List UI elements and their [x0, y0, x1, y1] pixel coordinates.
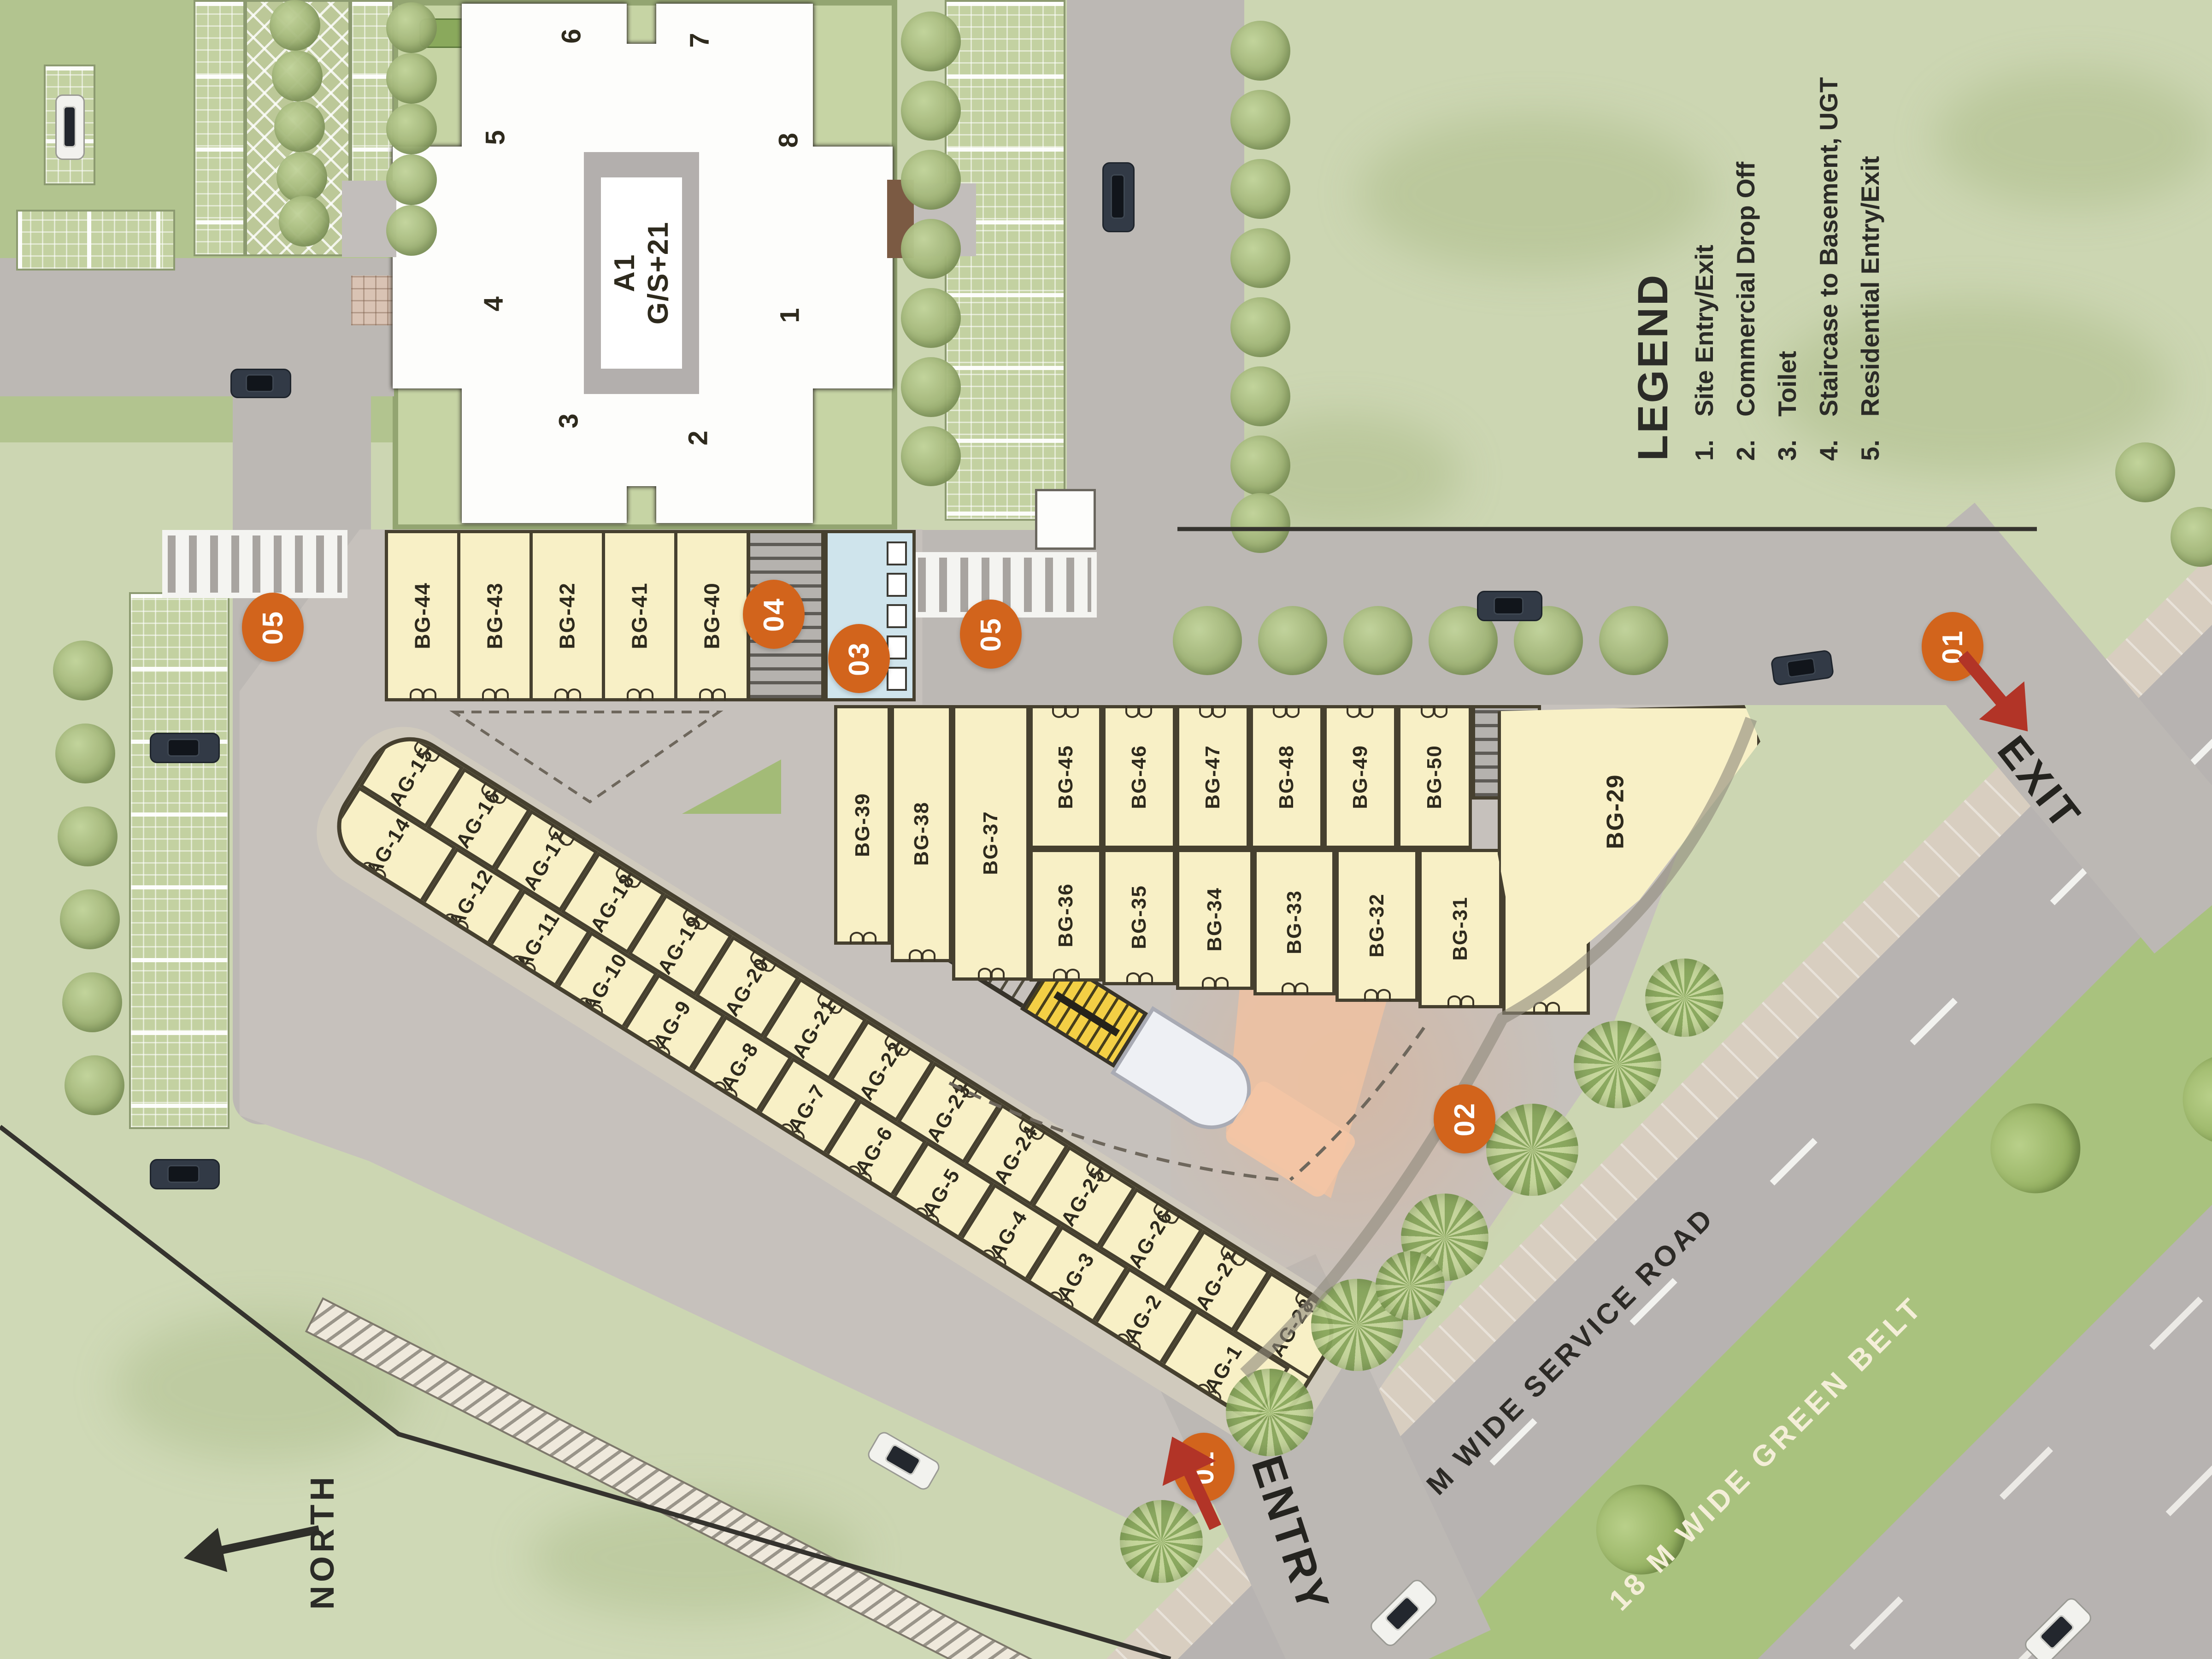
legend-item: 5.Residential Entry/Exit — [1855, 46, 1885, 461]
marker-toilet-03: 03 — [828, 624, 890, 693]
legend-item-text: Staircase to Basement, UGT — [1814, 77, 1843, 417]
marker-crossing-05-west: 05 — [242, 593, 304, 662]
legend-item-text: Residential Entry/Exit — [1855, 156, 1885, 417]
legend-item: 4.Staircase to Basement, UGT — [1814, 46, 1843, 461]
marker-dropoff-02: 02 — [1434, 1084, 1495, 1153]
legend-item-number: 3. — [1772, 429, 1802, 461]
marker-label: 05 — [257, 610, 289, 645]
legend-item: 2.Commercial Drop Off — [1731, 46, 1760, 461]
arrow-shaft — [1958, 651, 2008, 707]
legend-item-number: 4. — [1814, 429, 1843, 461]
legend-item-number: 2. — [1731, 429, 1760, 461]
legend-item-text: Commercial Drop Off — [1731, 162, 1760, 417]
arrow-shaft — [1183, 1468, 1221, 1530]
legend-item-text: Site Entry/Exit — [1689, 245, 1719, 417]
marker-label: 05 — [975, 617, 1007, 652]
marker-label: 02 — [1448, 1102, 1481, 1136]
legend-item-number: 1. — [1689, 429, 1719, 461]
marker-label: 03 — [843, 641, 876, 676]
entry-road-label: ENTRY — [1290, 1535, 1453, 1585]
marker-label: 04 — [758, 597, 790, 632]
site-plan: 12 M WIDE SERVICE ROAD18 M WIDE GREEN BE… — [0, 0, 2212, 1659]
north-label: NORTH — [304, 1473, 341, 1610]
exit-road-label: EXIT — [2039, 783, 2144, 832]
marker-crossing-05-east: 05 — [960, 600, 1022, 669]
legend-item: 3.Toilet — [1772, 46, 1802, 461]
legend-title: LEGEND — [1629, 46, 1677, 461]
legend-item-text: Toilet — [1772, 351, 1802, 417]
north-label: NORTH — [323, 1541, 459, 1579]
legend-title-text: LEGEND — [1630, 273, 1677, 461]
marker-stair-04: 04 — [743, 580, 805, 649]
legend-item: 1.Site Entry/Exit — [1689, 46, 1719, 461]
legend-item-number: 5. — [1855, 429, 1885, 461]
legend: LEGEND1.Site Entry/Exit2.Commercial Drop… — [1629, 46, 1915, 461]
